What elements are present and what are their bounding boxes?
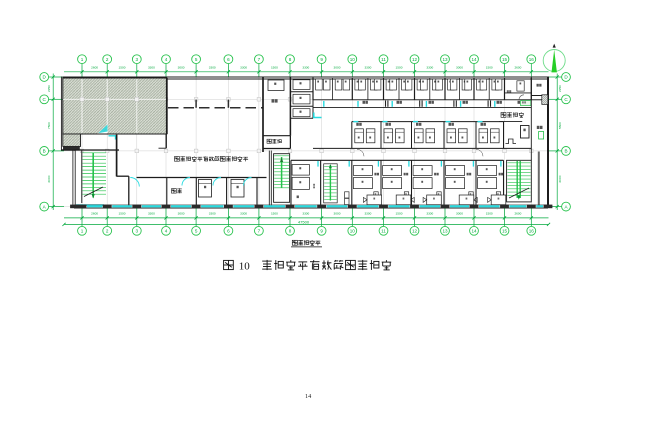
svg-text:1: 1 (81, 229, 84, 234)
svg-text:3000: 3000 (178, 212, 185, 216)
svg-text:1500: 1500 (486, 66, 493, 70)
svg-text:3000: 3000 (456, 212, 463, 216)
svg-text:13: 13 (442, 229, 448, 234)
svg-text:2: 2 (106, 229, 109, 234)
svg-text:14: 14 (305, 393, 311, 400)
svg-text:1500: 1500 (271, 66, 278, 70)
svg-text:10: 10 (350, 57, 356, 62)
svg-text:9: 9 (320, 229, 323, 234)
svg-text:7500: 7500 (47, 122, 51, 129)
svg-text:7: 7 (258, 229, 261, 234)
svg-text:3: 3 (136, 229, 139, 234)
svg-text:2250: 2250 (47, 85, 51, 92)
svg-text:3000: 3000 (334, 212, 341, 216)
svg-text:16: 16 (529, 57, 535, 62)
svg-text:C: C (43, 97, 47, 102)
svg-text:D: D (43, 75, 47, 80)
svg-text:5500: 5500 (558, 122, 562, 129)
svg-text:3000: 3000 (178, 66, 185, 70)
svg-text:12: 12 (412, 229, 418, 234)
svg-text:B: B (43, 149, 46, 154)
svg-text:3300: 3300 (148, 66, 155, 70)
svg-text:15: 15 (502, 229, 508, 234)
svg-text:3300: 3300 (426, 212, 433, 216)
svg-text:1500: 1500 (119, 212, 126, 216)
svg-text:3300: 3300 (364, 212, 371, 216)
svg-text:3300: 3300 (426, 66, 433, 70)
svg-text:47500: 47500 (298, 219, 310, 224)
svg-text:11: 11 (381, 57, 386, 62)
svg-text:6000: 6000 (558, 175, 562, 182)
svg-text:3300: 3300 (240, 66, 247, 70)
svg-text:1500: 1500 (396, 66, 403, 70)
svg-text:12: 12 (412, 57, 418, 62)
svg-text:10: 10 (239, 261, 251, 273)
svg-text:D: D (564, 75, 568, 80)
svg-text:2600: 2600 (91, 66, 98, 70)
svg-text:2600: 2600 (514, 66, 521, 70)
svg-text:1500: 1500 (119, 66, 126, 70)
svg-text:10: 10 (350, 229, 356, 234)
svg-text:5: 5 (195, 229, 198, 234)
svg-text:B: B (564, 149, 567, 154)
svg-text:2250: 2250 (558, 85, 562, 92)
svg-text:A: A (43, 204, 47, 209)
svg-text:3000: 3000 (334, 66, 341, 70)
svg-text:9: 9 (320, 57, 323, 62)
svg-text:11: 11 (381, 229, 386, 234)
svg-text:A: A (564, 204, 568, 209)
svg-text:2: 2 (106, 57, 109, 62)
svg-text:C: C (564, 97, 568, 102)
svg-text:7: 7 (258, 57, 261, 62)
svg-text:3300: 3300 (240, 212, 247, 216)
svg-text:4: 4 (165, 57, 168, 62)
svg-text:1500: 1500 (486, 212, 493, 216)
svg-text:1500: 1500 (396, 212, 403, 216)
svg-text:1500: 1500 (271, 212, 278, 216)
svg-text:6: 6 (227, 57, 230, 62)
svg-text:15: 15 (502, 57, 508, 62)
svg-text:5: 5 (195, 57, 198, 62)
svg-text:3300: 3300 (302, 66, 309, 70)
svg-text:6: 6 (227, 229, 230, 234)
svg-text:3300: 3300 (148, 212, 155, 216)
svg-text:1: 1 (81, 57, 84, 62)
svg-text:3300: 3300 (364, 66, 371, 70)
svg-text:8: 8 (289, 229, 292, 234)
svg-text:8: 8 (289, 57, 292, 62)
svg-text:3300: 3300 (209, 212, 216, 216)
svg-text:3300: 3300 (209, 66, 216, 70)
svg-text:2600: 2600 (91, 212, 98, 216)
svg-text:3300: 3300 (302, 212, 309, 216)
svg-text:3000: 3000 (456, 66, 463, 70)
svg-text:6000: 6000 (47, 175, 51, 182)
svg-text:13: 13 (442, 57, 448, 62)
svg-text:2600: 2600 (514, 212, 521, 216)
svg-text:14: 14 (471, 229, 477, 234)
svg-text:14: 14 (471, 57, 477, 62)
svg-text:16: 16 (529, 229, 535, 234)
svg-text:3: 3 (136, 57, 139, 62)
svg-text:4: 4 (165, 229, 168, 234)
